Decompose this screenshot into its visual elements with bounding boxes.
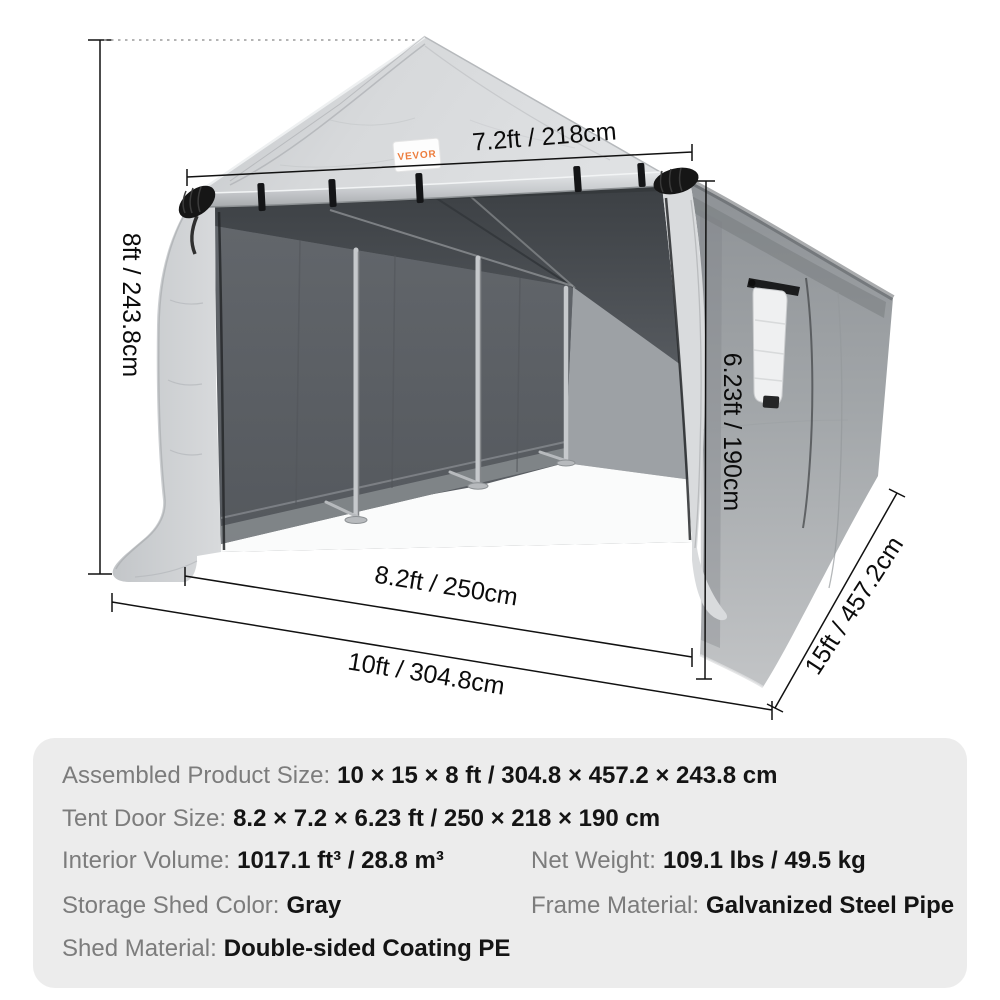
spec-row-assembled-size: Assembled Product Size:10 × 15 × 8 ft / … <box>62 762 947 790</box>
dim-label-door-height: 6.23ft / 190cm <box>718 353 746 511</box>
product-dimension-image: VEVOR 7.2ft / 218cm 8ft / 243.8cm 6.23ft… <box>0 0 1000 1000</box>
dim-label-door-width: 8.2ft / 250cm <box>373 561 520 612</box>
spec-label: Frame Material: <box>531 892 699 919</box>
dim-label-overall-height: 8ft / 243.8cm <box>117 233 145 378</box>
spec-row-shed-material: Shed Material:Double-sided Coating PE <box>62 935 947 963</box>
spec-value: 8.2 × 7.2 × 6.23 ft / 250 × 218 × 190 cm <box>233 805 660 832</box>
spec-pair-shed-color: Storage Shed Color:Gray <box>62 892 341 919</box>
spec-label: Net Weight: <box>531 847 656 874</box>
spec-pair-frame-material: Frame Material:Galvanized Steel Pipe <box>531 892 954 920</box>
spec-value: Double-sided Coating PE <box>224 935 511 962</box>
dim-line-overall-height <box>88 40 112 574</box>
spec-value: 1017.1 ft³ / 28.8 m³ <box>237 847 444 874</box>
spec-value: 10 × 15 × 8 ft / 304.8 × 457.2 × 243.8 c… <box>337 762 777 789</box>
spec-row-color-frame: Storage Shed Color:Gray Frame Material:G… <box>62 892 947 920</box>
tent-gable-roof <box>200 36 662 199</box>
tent-door-interior <box>210 180 700 560</box>
dim-label-overall-width: 10ft / 304.8cm <box>346 647 507 700</box>
spec-value: Gray <box>286 892 341 919</box>
spec-pair-net-weight: Net Weight:109.1 lbs / 49.5 kg <box>531 847 866 875</box>
dim-line-overall-width <box>112 593 772 720</box>
spec-label: Tent Door Size: <box>62 805 226 832</box>
spec-pair-interior-volume: Interior Volume:1017.1 ft³ / 28.8 m³ <box>62 847 444 874</box>
spec-panel: Assembled Product Size:10 × 15 × 8 ft / … <box>33 738 967 988</box>
spec-label: Storage Shed Color: <box>62 892 279 919</box>
spec-value: Galvanized Steel Pipe <box>706 892 954 919</box>
spec-row-volume-weight: Interior Volume:1017.1 ft³ / 28.8 m³ Net… <box>62 847 947 875</box>
spec-row-tent-door-size: Tent Door Size:8.2 × 7.2 × 6.23 ft / 250… <box>62 805 947 833</box>
spec-label: Assembled Product Size: <box>62 762 330 789</box>
tent-illustration: VEVOR 7.2ft / 218cm 8ft / 243.8cm 6.23ft… <box>0 0 1000 738</box>
spec-label: Interior Volume: <box>62 847 230 874</box>
spec-value: 109.1 lbs / 49.5 kg <box>663 847 866 874</box>
spec-label: Shed Material: <box>62 935 217 962</box>
